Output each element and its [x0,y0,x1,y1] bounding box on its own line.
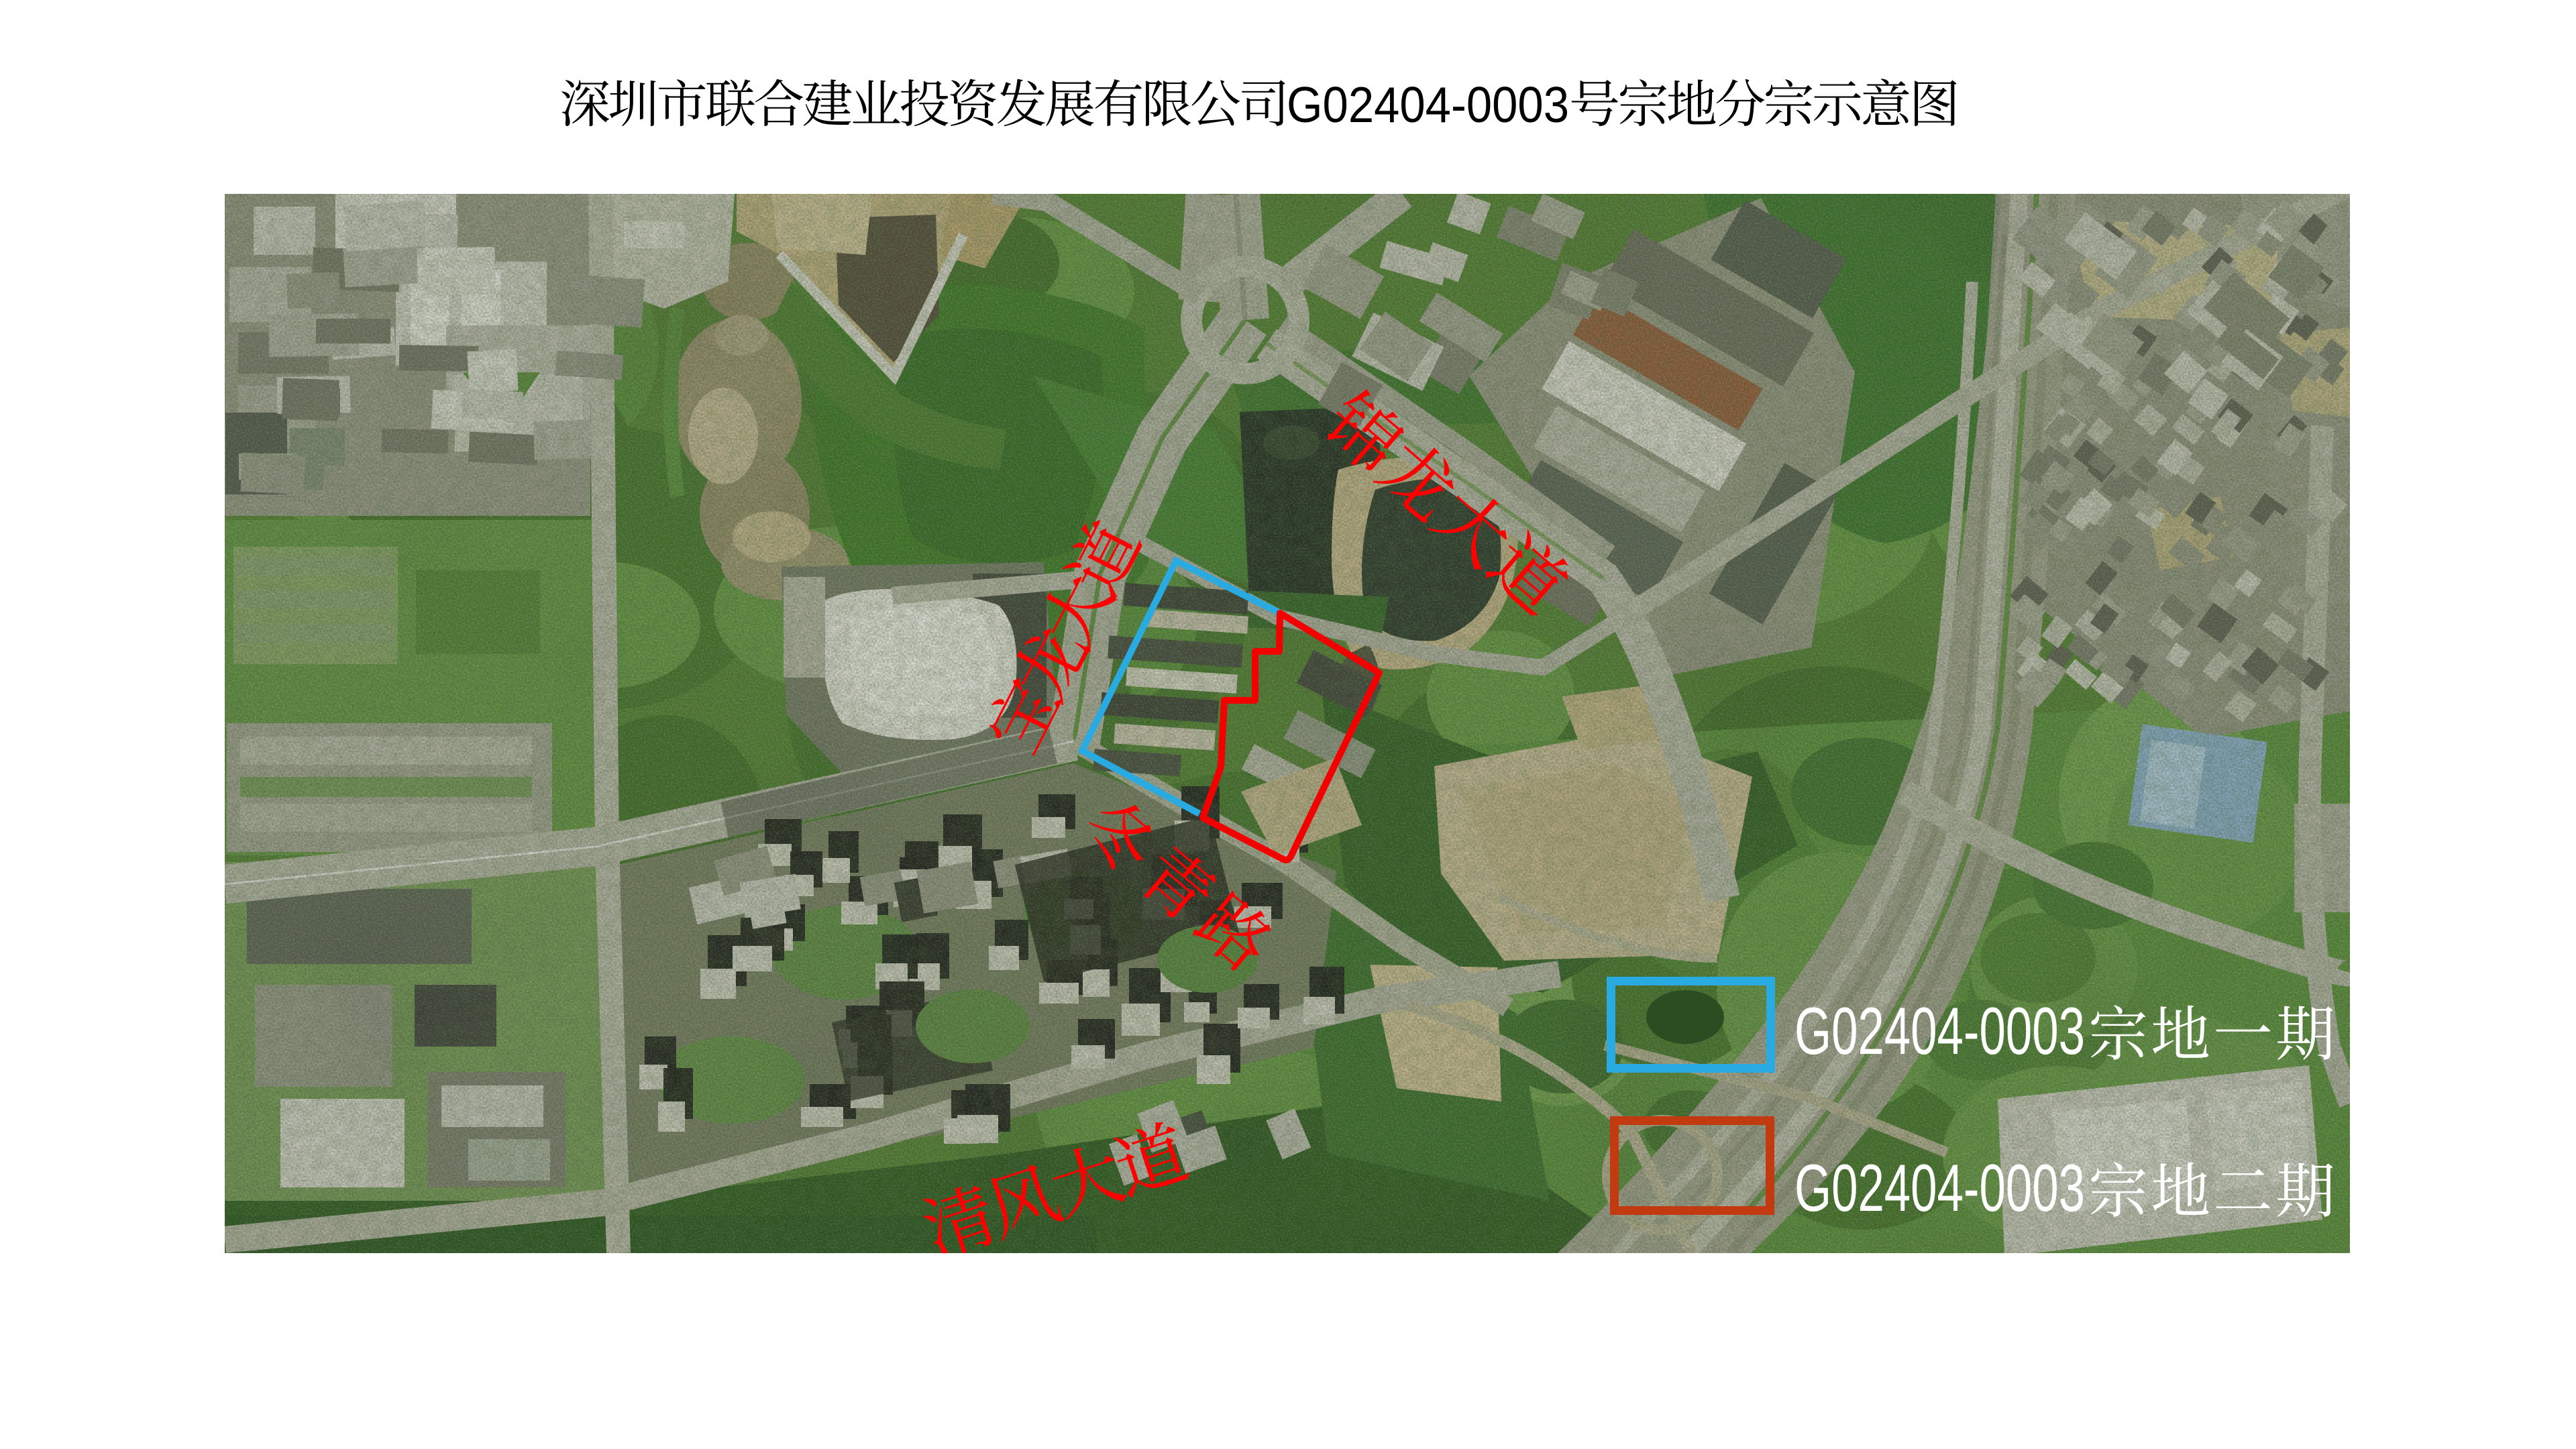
svg-text:G02404-0003: G02404-0003 [1794,1150,2085,1225]
svg-text:G02404-0003: G02404-0003 [1794,994,2085,1068]
svg-text:G02404-0003: G02404-0003 [1287,76,1569,133]
